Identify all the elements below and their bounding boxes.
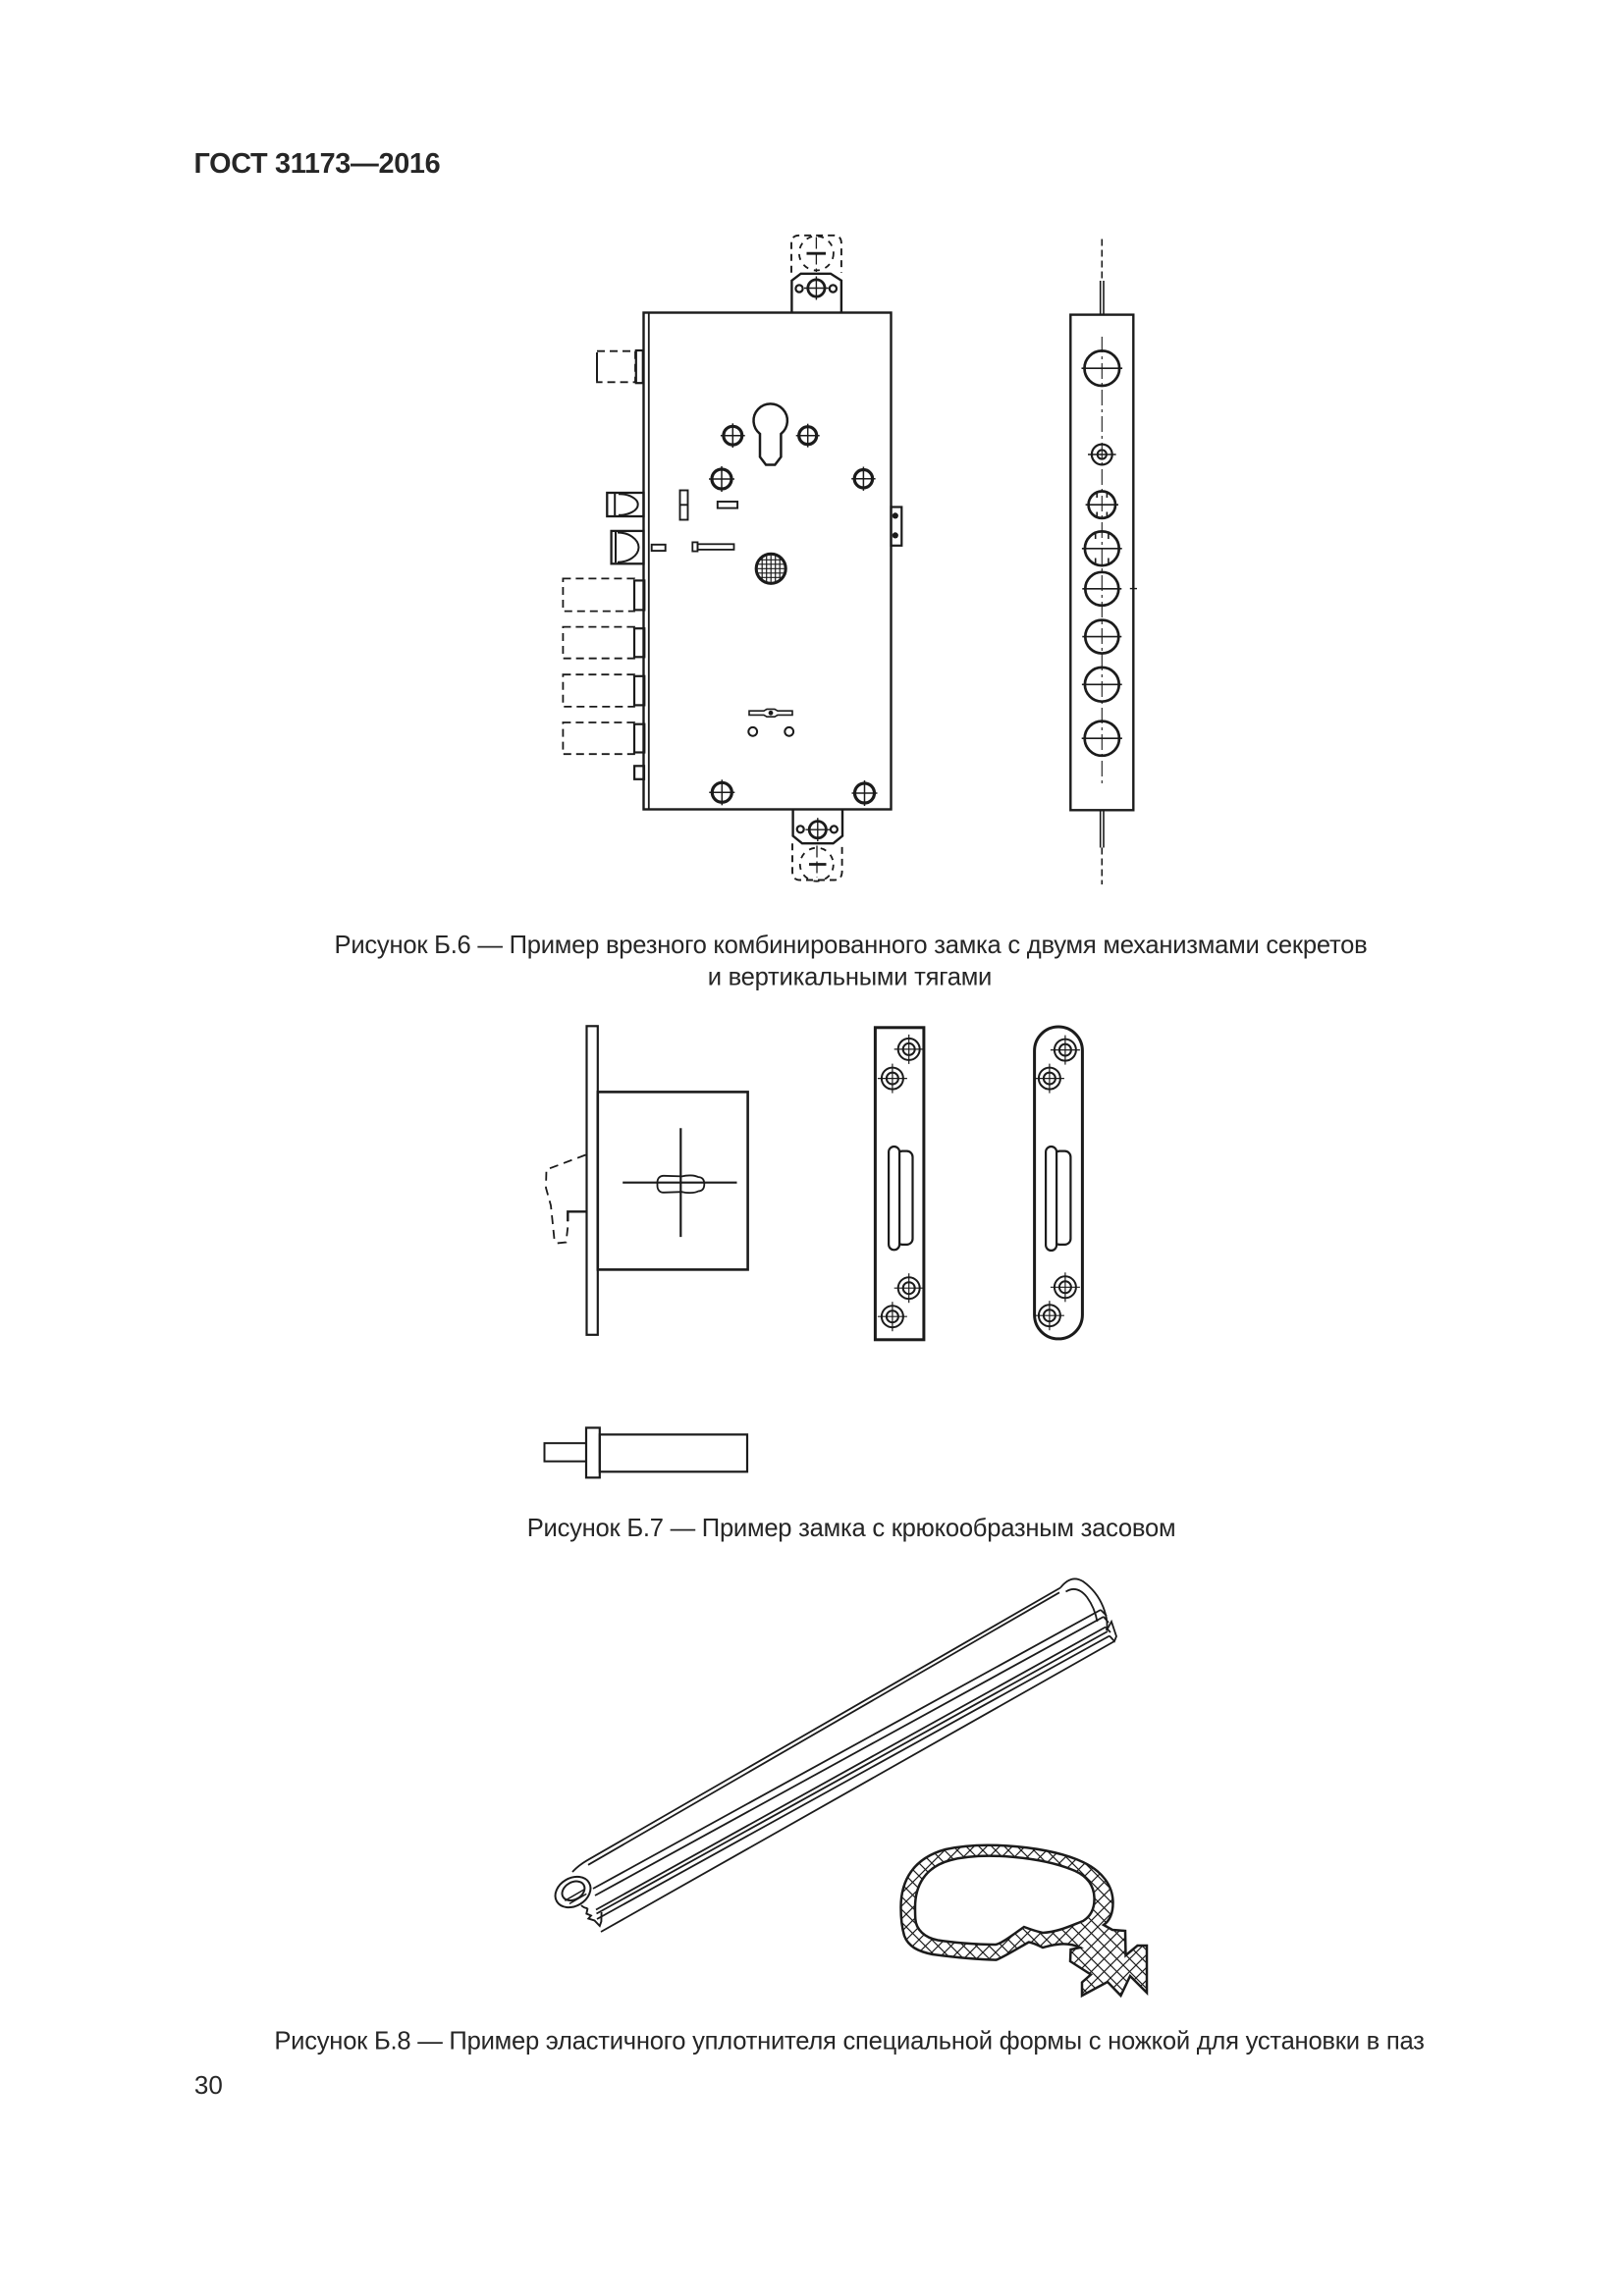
svg-text:Рисунок Б.8 — Пример эластично: Рисунок Б.8 — Пример эластичного уплотни…	[274, 2028, 1424, 2056]
svg-text:Рисунок Б.7 — Пример замка с к: Рисунок Б.7 — Пример замка с крюкообразн…	[527, 1515, 1176, 1542]
svg-text:ГОСТ 31173—2016: ГОСТ 31173—2016	[194, 148, 441, 180]
svg-text:30: 30	[194, 2070, 223, 2100]
svg-text:Рисунок Б.6 — Пример врезного: Рисунок Б.6 — Пример врезного комбиниров…	[335, 932, 1368, 959]
svg-text:и вертикальными тягами: и вертикальными тягами	[708, 963, 992, 990]
